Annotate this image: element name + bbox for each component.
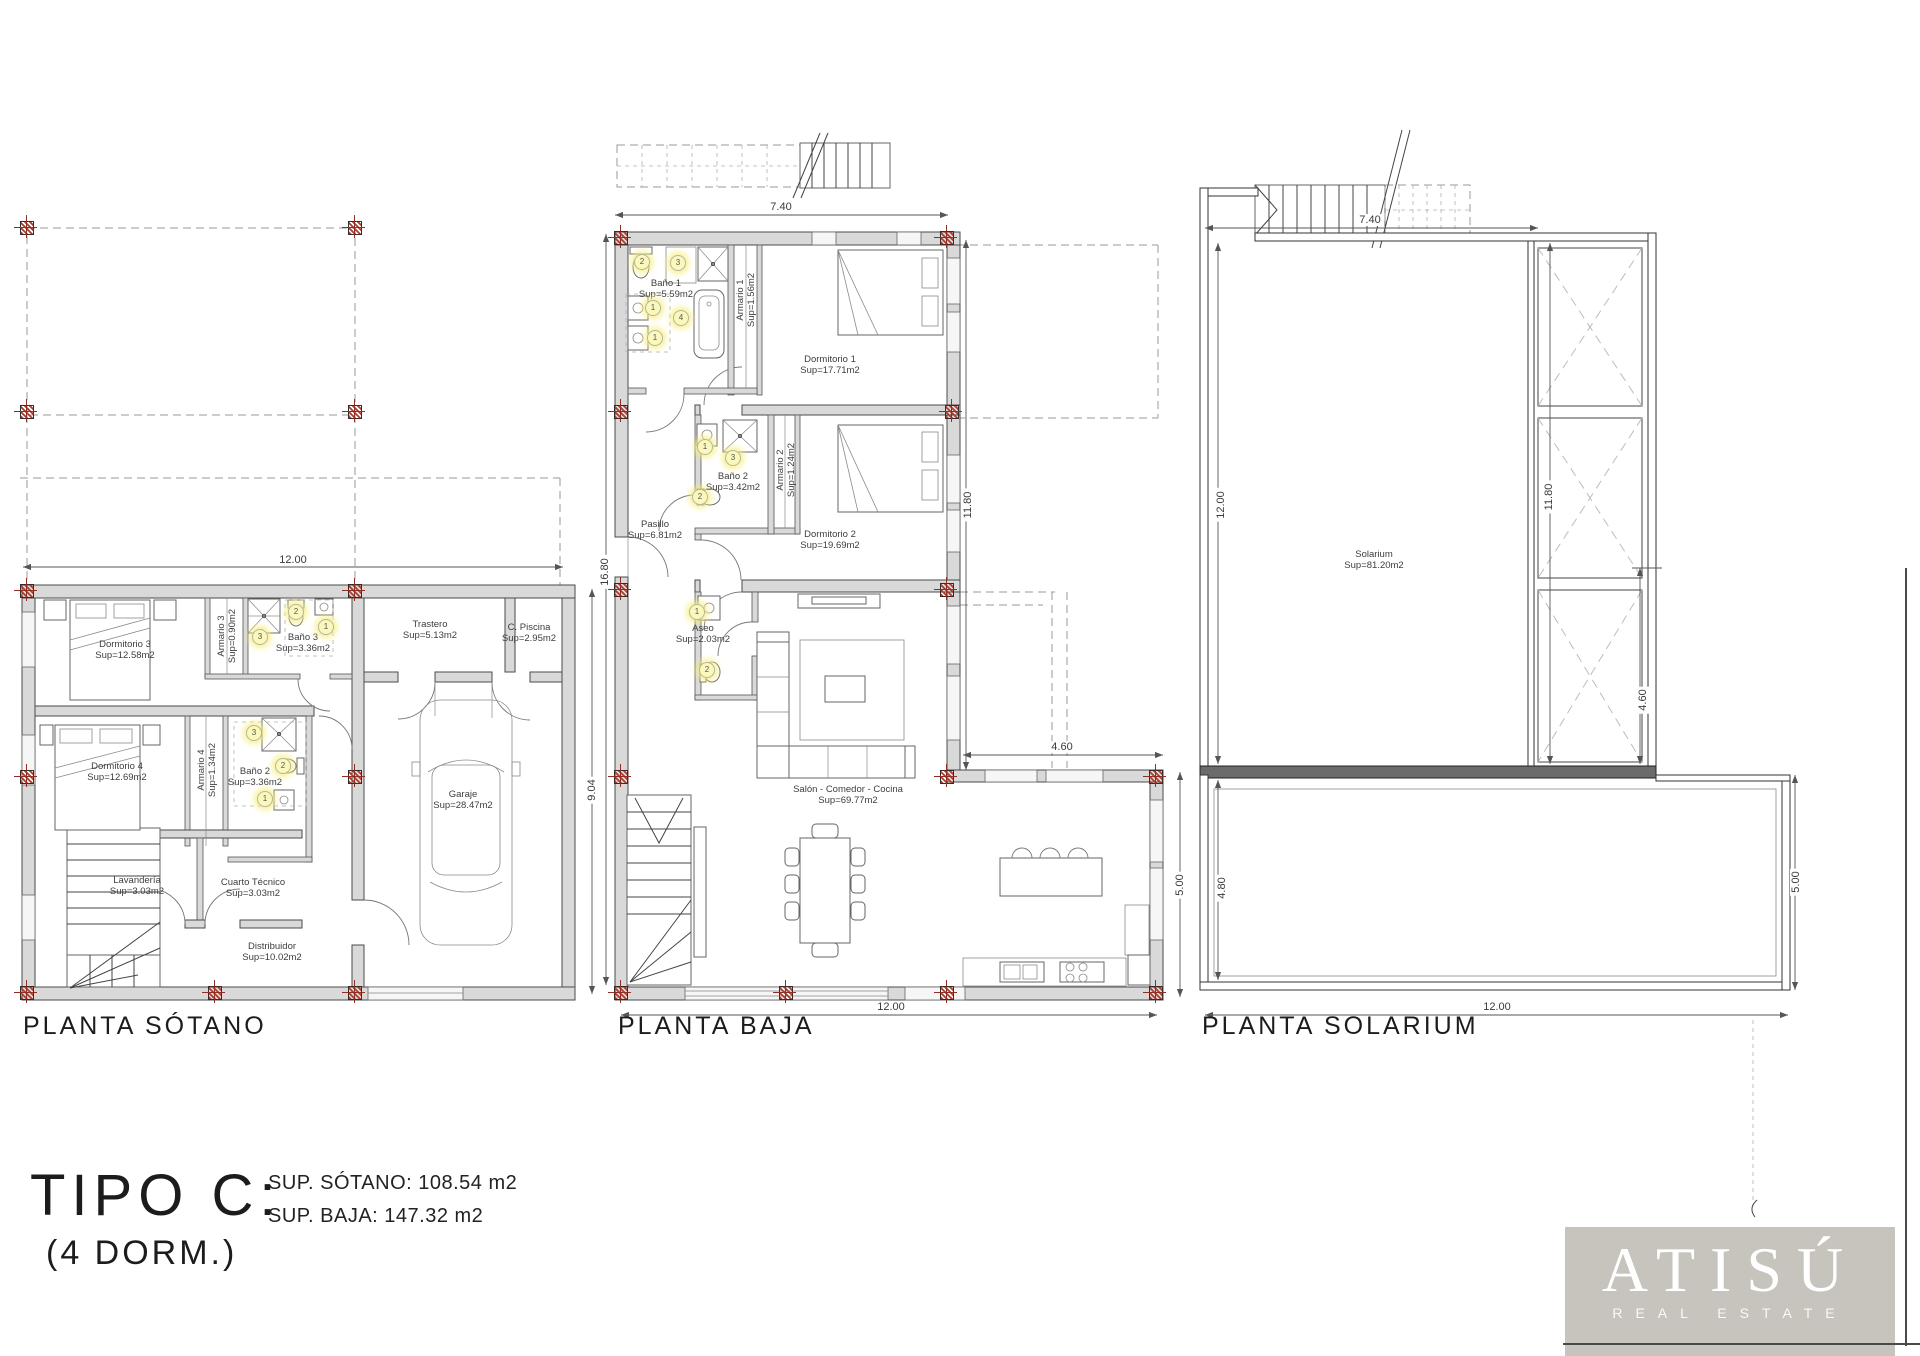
floorplan-drawing bbox=[0, 0, 1920, 1356]
dim-label: 9.04 bbox=[586, 776, 598, 803]
room-label: Dormitorio 1Sup=17.71m2 bbox=[800, 354, 859, 376]
dim-label: 4.60 bbox=[1637, 686, 1649, 713]
dim-label: 12.00 bbox=[276, 554, 310, 566]
fixture-marker: 2 bbox=[692, 489, 708, 505]
plan-baja bbox=[606, 133, 1180, 1015]
column-marker bbox=[348, 405, 362, 419]
room-label: Baño 3Sup=3.36m2 bbox=[276, 632, 330, 654]
fixture-marker: 2 bbox=[288, 604, 304, 620]
room-label: GarajeSup=28.47m2 bbox=[433, 789, 492, 811]
sup-sotano-text: SUP. SÓTANO: 108.54 m2 bbox=[268, 1172, 517, 1195]
fixture-marker: 1 bbox=[647, 330, 663, 346]
room-label: Dormitorio 3Sup=12.58m2 bbox=[95, 639, 154, 661]
logo-tagline: REAL ESTATE bbox=[1565, 1305, 1895, 1321]
room-label: Armario 3Sup=0.90m2 bbox=[216, 609, 238, 663]
room-label: PasilloSup=6.81m2 bbox=[628, 519, 682, 541]
dim-label: 16.80 bbox=[599, 555, 611, 589]
room-label: Baño 2Sup=3.42m2 bbox=[706, 471, 760, 493]
type-title: TIPO C: bbox=[30, 1162, 281, 1229]
room-label: SolariumSup=81.20m2 bbox=[1344, 549, 1403, 571]
dim-label: 7.40 bbox=[767, 201, 794, 213]
column-marker bbox=[779, 986, 793, 1000]
fixture-marker: 4 bbox=[673, 310, 689, 326]
column-marker bbox=[348, 986, 362, 1000]
dim-label: 7.40 bbox=[1356, 214, 1383, 226]
plan-title-sotano: PLANTA SÓTANO bbox=[23, 1012, 267, 1041]
room-label: C. PiscinaSup=2.95m2 bbox=[502, 622, 556, 644]
column-marker bbox=[940, 986, 954, 1000]
dim-label: 11.80 bbox=[962, 489, 974, 522]
column-marker bbox=[20, 986, 34, 1000]
column-marker bbox=[614, 986, 628, 1000]
dim-label: 5.00 bbox=[1174, 871, 1186, 898]
room-label: AseoSup=2.03m2 bbox=[676, 623, 730, 645]
column-marker bbox=[940, 583, 954, 597]
column-marker bbox=[940, 231, 954, 245]
dim-label: 11.80 bbox=[1543, 481, 1555, 514]
fixture-marker: 1 bbox=[318, 619, 334, 635]
column-marker bbox=[1149, 770, 1163, 784]
logo: ATISÚ REAL ESTATE bbox=[1565, 1227, 1895, 1356]
plan-sotano bbox=[20, 228, 592, 1000]
type-subtitle: (4 DORM.) bbox=[46, 1234, 237, 1273]
room-label: Salón - Comedor - CocinaSup=69.77m2 bbox=[793, 784, 903, 806]
column-marker bbox=[20, 405, 34, 419]
fixture-marker: 2 bbox=[275, 758, 291, 774]
room-label: Armario 1Sup=1.56m2 bbox=[735, 273, 757, 327]
dim-label: 12.00 bbox=[1480, 1001, 1514, 1013]
fixture-marker: 1 bbox=[689, 604, 705, 620]
column-marker bbox=[348, 770, 362, 784]
column-marker bbox=[20, 770, 34, 784]
column-marker bbox=[614, 583, 628, 597]
fixture-marker: 2 bbox=[699, 662, 715, 678]
fixture-marker: 3 bbox=[252, 629, 268, 645]
dim-label: 12.00 bbox=[874, 1001, 908, 1013]
plan-title-solarium: PLANTA SOLARIUM bbox=[1202, 1012, 1479, 1041]
fixture-marker: 1 bbox=[645, 300, 661, 316]
sup-baja-text: SUP. BAJA: 147.32 m2 bbox=[268, 1205, 483, 1228]
column-marker bbox=[1149, 986, 1163, 1000]
column-marker bbox=[945, 405, 959, 419]
column-marker bbox=[348, 221, 362, 235]
room-label: Baño 1Sup=5.59m2 bbox=[639, 278, 693, 300]
room-label: Baño 2Sup=3.36m2 bbox=[228, 766, 282, 788]
fixture-marker: 3 bbox=[725, 450, 741, 466]
dim-label: 4.60 bbox=[1048, 741, 1075, 753]
room-label: Armario 4Sup=1.34m2 bbox=[196, 743, 218, 797]
sheet-frame-bottom bbox=[1563, 1343, 1920, 1345]
room-label: Cuarto TécnicoSup=3.03m2 bbox=[221, 877, 285, 899]
plan-solarium bbox=[1200, 130, 1795, 1217]
dim-label: 5.00 bbox=[1790, 868, 1802, 895]
plan-title-baja: PLANTA BAJA bbox=[618, 1012, 815, 1041]
column-marker bbox=[940, 770, 954, 784]
room-label: Dormitorio 2Sup=19.69m2 bbox=[800, 529, 859, 551]
dim-label: 4.80 bbox=[1216, 874, 1228, 901]
fixture-marker: 1 bbox=[257, 791, 273, 807]
room-label: Armario 2Sup=1.24m2 bbox=[775, 443, 797, 497]
column-marker bbox=[348, 584, 362, 598]
column-marker bbox=[614, 770, 628, 784]
fixture-marker: 1 bbox=[697, 439, 713, 455]
logo-name: ATISÚ bbox=[1565, 1233, 1895, 1307]
column-marker bbox=[614, 405, 628, 419]
floorplan-sheet: PLANTA SÓTANODormitorio 3Sup=12.58m2Arma… bbox=[0, 0, 1920, 1356]
room-label: LavanderíaSup=3.03m2 bbox=[110, 875, 164, 897]
fixture-marker: 3 bbox=[246, 725, 262, 741]
column-marker bbox=[20, 221, 34, 235]
dim-label: 12.00 bbox=[1215, 488, 1227, 522]
sheet-frame-right bbox=[1905, 568, 1907, 1346]
room-label: DistribuidorSup=10.02m2 bbox=[242, 941, 301, 963]
column-marker bbox=[208, 986, 222, 1000]
column-marker bbox=[20, 584, 34, 598]
room-label: Dormitorio 4Sup=12.69m2 bbox=[87, 761, 146, 783]
fixture-marker: 2 bbox=[634, 254, 650, 270]
room-label: TrasteroSup=5.13m2 bbox=[403, 619, 457, 641]
column-marker bbox=[614, 231, 628, 245]
fixture-marker: 3 bbox=[670, 255, 686, 271]
